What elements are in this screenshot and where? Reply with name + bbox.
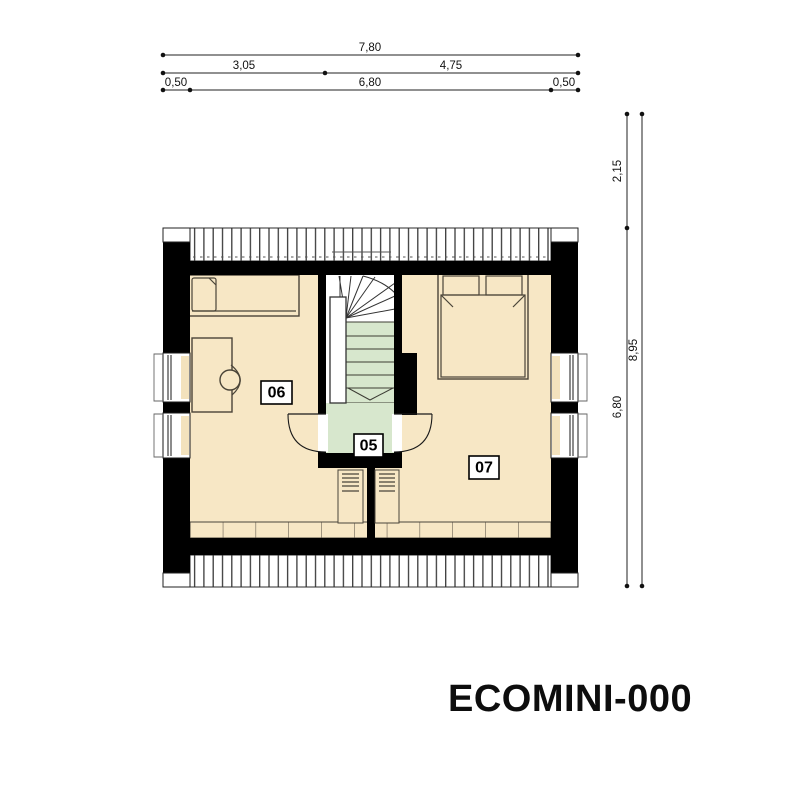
dim-dot xyxy=(323,71,328,76)
dim-label-seg-right: 4,75 xyxy=(440,60,462,72)
right-wall-between-windows xyxy=(551,402,578,413)
staircase xyxy=(325,275,395,455)
window-sill-inner xyxy=(181,356,189,399)
roof-hatch-strip-top xyxy=(190,228,551,261)
double-bed xyxy=(438,273,528,379)
room-label-06: 06 xyxy=(268,385,286,402)
dim-dot xyxy=(640,112,645,117)
door-opening-right xyxy=(392,414,402,452)
corner-box-top-right xyxy=(551,228,578,242)
dim-dot xyxy=(576,53,581,58)
room-label-07: 07 xyxy=(475,460,493,477)
window-sill-inner xyxy=(552,356,560,399)
dim-dot xyxy=(161,53,166,58)
partition-wall xyxy=(367,468,375,538)
left-wall-upper xyxy=(163,242,190,353)
corner-box-bottom-left xyxy=(163,573,190,587)
dim-dot xyxy=(625,226,630,231)
dim-label-total-width: 7,80 xyxy=(359,42,381,54)
dim-dot xyxy=(576,71,581,76)
floor-plan-canvas: 06 05 07 7,80 3,05 4,75 0,50 6,80 0,50 2… xyxy=(0,0,800,800)
right-wall-upper xyxy=(551,242,578,353)
floor-plan-drawing: 06 05 07 7,80 3,05 4,75 0,50 6,80 0,50 2… xyxy=(0,0,800,800)
door-opening-left xyxy=(318,414,328,452)
dim-label-interior: 6,80 xyxy=(359,77,381,89)
dim-dot xyxy=(625,112,630,117)
right-wall-lower xyxy=(551,458,578,573)
left-wall-lower xyxy=(163,458,190,573)
corner-box-bottom-right xyxy=(551,573,578,587)
dim-dot xyxy=(640,584,645,589)
dim-dot xyxy=(625,584,630,589)
dim-label-wall-right: 0,50 xyxy=(553,77,575,89)
dim-label-seg-left: 3,05 xyxy=(233,60,255,72)
room-label-05: 05 xyxy=(360,438,378,455)
window-sill-inner xyxy=(552,416,560,455)
corner-box-top-left xyxy=(163,228,190,242)
single-bed xyxy=(189,275,299,316)
bedroom-07-furniture xyxy=(438,273,528,379)
project-title: ECOMINI-000 xyxy=(448,678,692,720)
stairwell-wall-left xyxy=(318,275,326,415)
dim-dot xyxy=(576,88,581,93)
dim-label-wall-left: 0,50 xyxy=(165,77,187,89)
dim-label-right-lower: 6,80 xyxy=(612,396,624,418)
top-wall xyxy=(190,261,551,275)
left-wall-between-windows xyxy=(163,402,190,413)
chimney-block xyxy=(394,353,417,415)
dim-dot xyxy=(188,88,193,93)
dim-dot xyxy=(161,71,166,76)
roof-hatch-strip-bottom xyxy=(190,555,551,587)
dim-label-right-total: 8,95 xyxy=(628,339,640,361)
stair-handrail xyxy=(330,297,346,403)
bottom-wall xyxy=(190,538,551,555)
dim-label-right-upper: 2,15 xyxy=(612,160,624,182)
chair-seat xyxy=(220,370,240,390)
window-sill-inner xyxy=(181,416,189,455)
